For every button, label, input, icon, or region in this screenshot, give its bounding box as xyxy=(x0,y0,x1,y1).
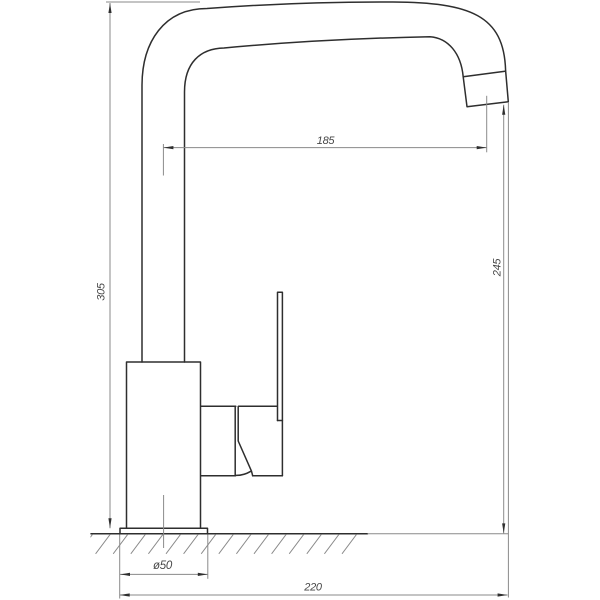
svg-text:ø50: ø50 xyxy=(153,560,173,572)
svg-text:185: 185 xyxy=(317,135,336,147)
svg-text:305: 305 xyxy=(96,282,108,301)
svg-text:220: 220 xyxy=(303,582,323,594)
svg-text:245: 245 xyxy=(492,258,504,278)
